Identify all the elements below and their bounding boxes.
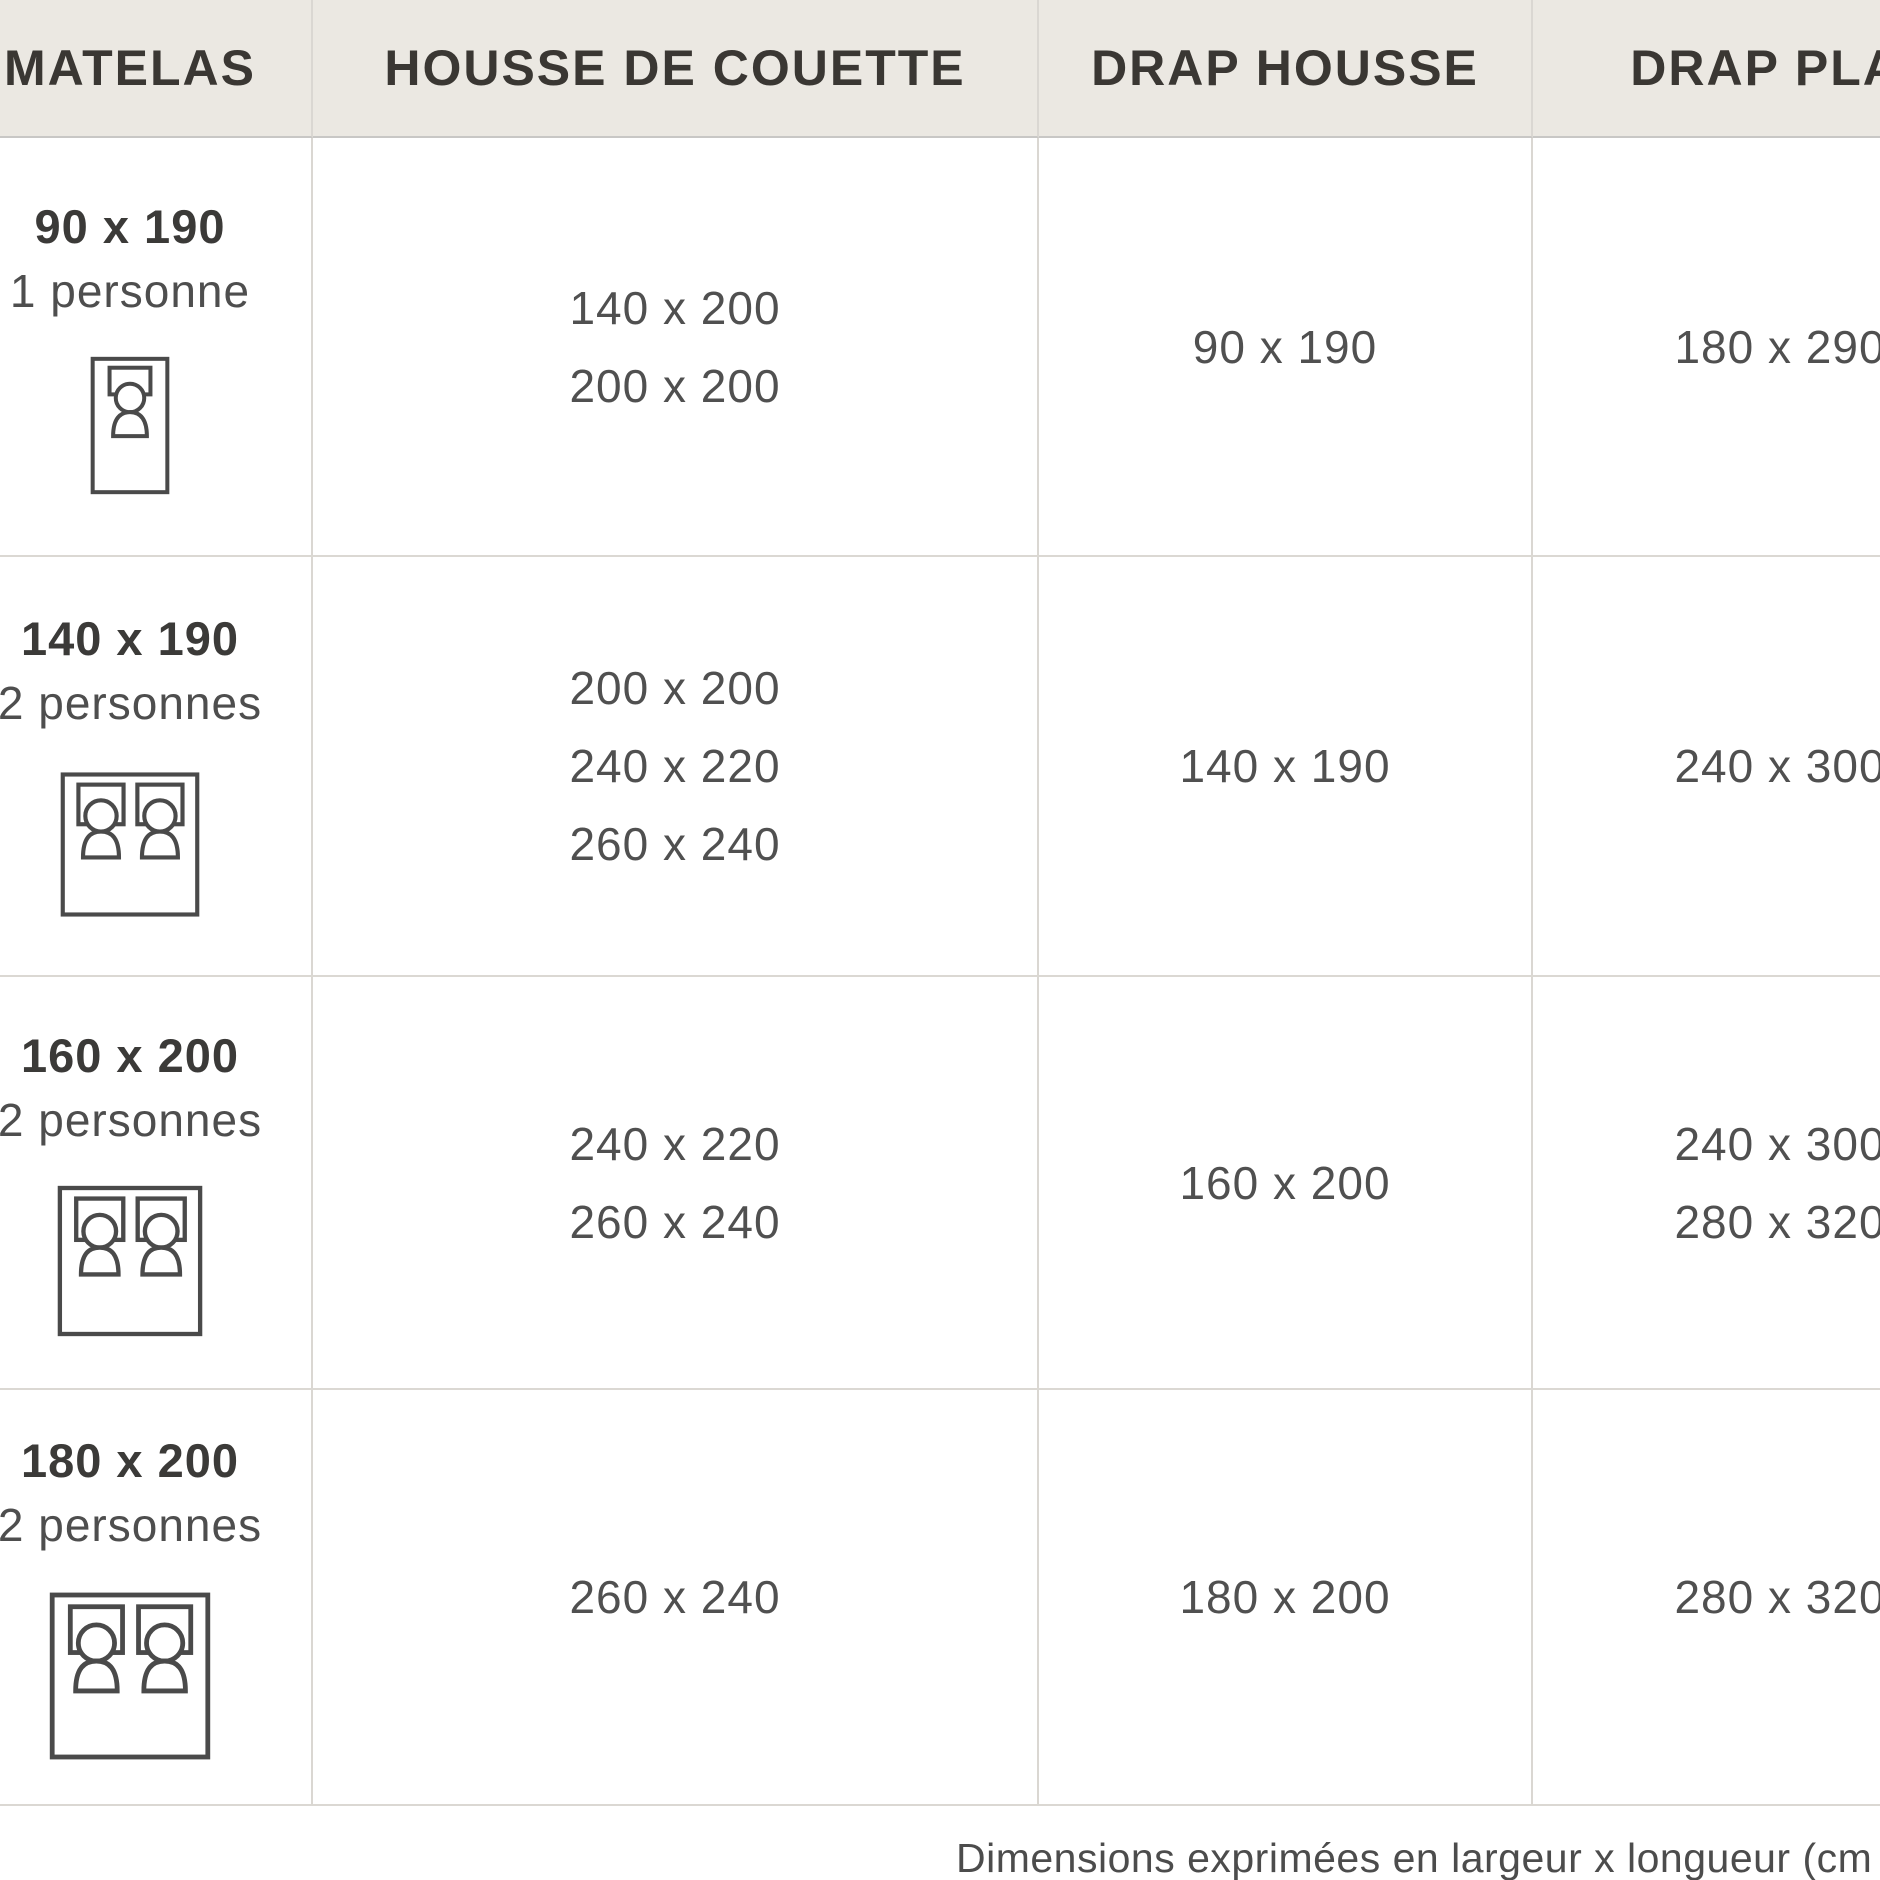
size-value: 140 x 190 bbox=[1179, 727, 1390, 805]
col-header-drap-housse: DRAP HOUSSE bbox=[1039, 0, 1533, 138]
size-guide-page: MATELAS HOUSSE DE COUETTE DRAP HOUSSE DR… bbox=[0, 0, 1880, 1880]
size-value: 260 x 240 bbox=[569, 1183, 780, 1261]
matelas-cell: 160 x 200 2 personnes bbox=[0, 977, 313, 1390]
housse-de-couette-cell: 240 x 220 260 x 240 bbox=[313, 977, 1039, 1390]
size-value: 260 x 240 bbox=[569, 805, 780, 883]
bed-persons-label: 1 personne bbox=[10, 264, 250, 318]
double-bed-icon bbox=[60, 768, 200, 921]
size-value: 180 x 290 bbox=[1674, 308, 1880, 386]
size-value: 280 x 320 bbox=[1674, 1558, 1880, 1636]
bed-size-label: 180 x 200 bbox=[21, 1433, 239, 1488]
housse-de-couette-cell: 140 x 200 200 x 200 bbox=[313, 138, 1039, 557]
size-value: 200 x 200 bbox=[569, 347, 780, 425]
size-value: 240 x 220 bbox=[569, 1105, 780, 1183]
drap-housse-cell: 180 x 200 bbox=[1039, 1390, 1533, 1806]
bedding-size-table: MATELAS HOUSSE DE COUETTE DRAP HOUSSE DR… bbox=[0, 0, 1880, 1806]
size-value: 140 x 200 bbox=[569, 269, 780, 347]
size-value: 240 x 220 bbox=[569, 727, 780, 805]
matelas-cell: 90 x 190 1 personne bbox=[0, 138, 313, 557]
drap-plat-cell: 240 x 300 bbox=[1533, 557, 1880, 977]
col-header-housse-de-couette: HOUSSE DE COUETTE bbox=[313, 0, 1039, 138]
drap-plat-cell: 180 x 290 bbox=[1533, 138, 1880, 557]
size-value: 240 x 300 bbox=[1674, 727, 1880, 805]
single-bed-icon bbox=[90, 356, 170, 495]
col-header-drap-plat: DRAP PLAT bbox=[1533, 0, 1880, 138]
dimensions-note: Dimensions exprimées en largeur x longue… bbox=[956, 1833, 1872, 1880]
bed-size-label: 140 x 190 bbox=[21, 611, 239, 666]
size-value: 260 x 240 bbox=[569, 1558, 780, 1636]
bed-persons-label: 2 personnes bbox=[0, 676, 262, 730]
drap-housse-cell: 140 x 190 bbox=[1039, 557, 1533, 977]
bed-size-label: 160 x 200 bbox=[21, 1028, 239, 1083]
bed-persons-label: 2 personnes bbox=[0, 1498, 262, 1552]
bed-persons-label: 2 personnes bbox=[0, 1093, 262, 1147]
drap-plat-cell: 280 x 320 bbox=[1533, 1390, 1880, 1806]
matelas-cell: 180 x 200 2 personnes bbox=[0, 1390, 313, 1806]
drap-housse-cell: 90 x 190 bbox=[1039, 138, 1533, 557]
size-value: 280 x 320 bbox=[1674, 1183, 1880, 1261]
size-value: 240 x 300 bbox=[1674, 1105, 1880, 1183]
size-value: 180 x 200 bbox=[1179, 1558, 1390, 1636]
drap-housse-cell: 160 x 200 bbox=[1039, 977, 1533, 1390]
housse-de-couette-cell: 260 x 240 bbox=[313, 1390, 1039, 1806]
size-value: 90 x 190 bbox=[1193, 308, 1377, 386]
size-value: 200 x 200 bbox=[569, 649, 780, 727]
col-header-matelas: MATELAS bbox=[0, 0, 313, 138]
drap-plat-cell: 240 x 300 280 x 320 bbox=[1533, 977, 1880, 1390]
size-value: 160 x 200 bbox=[1179, 1144, 1390, 1222]
matelas-cell: 140 x 190 2 personnes bbox=[0, 557, 313, 977]
double-bed-icon bbox=[49, 1590, 211, 1762]
bed-size-label: 90 x 190 bbox=[35, 199, 226, 254]
housse-de-couette-cell: 200 x 200 240 x 220 260 x 240 bbox=[313, 557, 1039, 977]
double-bed-icon bbox=[57, 1185, 203, 1337]
